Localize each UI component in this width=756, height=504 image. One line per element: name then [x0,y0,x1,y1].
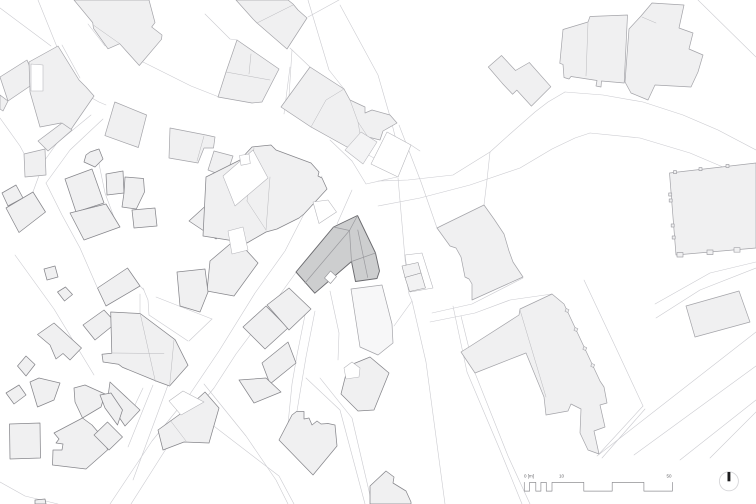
svg-text:0 [m]: 0 [m] [524,474,534,479]
svg-text:50: 50 [667,474,673,479]
svg-text:10: 10 [559,474,565,479]
